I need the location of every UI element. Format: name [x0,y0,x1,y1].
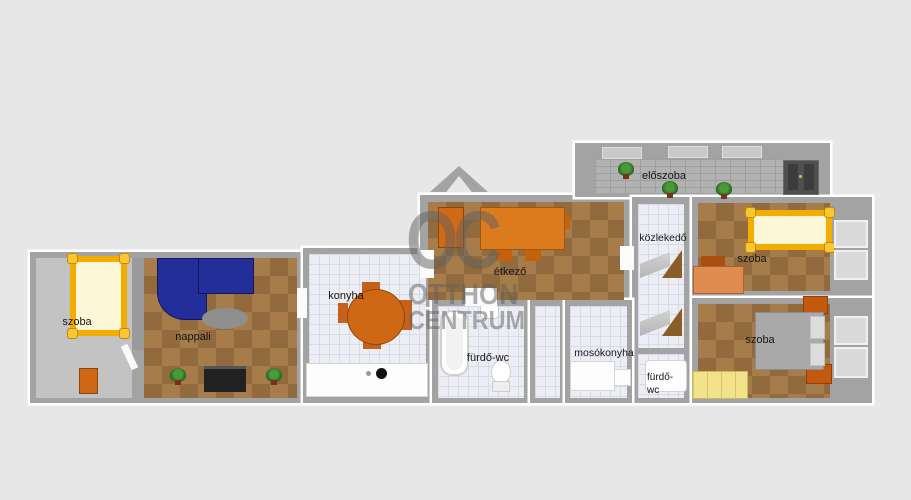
room-label-furdo-small-line2: wc [647,385,659,396]
plant-icon [618,162,634,176]
window [834,347,868,378]
room-label-kozlekedo: közlekedő [639,232,686,244]
rug [202,308,248,329]
appliance [614,369,631,386]
entry-door [783,160,819,195]
window [834,220,868,248]
dining-chair [496,249,512,261]
chevron-roof-icon [430,166,488,192]
open-door-leaf [662,308,682,336]
door-handle [799,175,802,178]
sideboard [438,207,464,248]
plant-icon [170,368,186,382]
room-label-szoba-tr: szoba [737,253,766,265]
corner-sofa-arm [198,258,254,294]
plant-icon [266,368,282,382]
window [834,316,868,345]
mattress [754,216,826,244]
room-label-szoba-left: szoba [62,316,91,328]
pillow [810,343,825,366]
toilet-tank [492,381,510,392]
pillow [810,316,825,339]
room-label-szoba-br: szoba [745,334,774,346]
washing-machine [570,361,615,391]
dresser [693,266,744,294]
ceiling-panel [722,146,762,158]
washbasin [480,304,499,319]
room-label-furdo-wc: fürdő-wc [467,352,509,364]
bathtub [440,310,469,376]
room-label-nappali: nappali [175,331,210,343]
plant-icon [716,182,732,196]
bed [748,210,832,250]
cabinet [79,368,98,394]
open-door-leaf [662,250,682,278]
room-label-furdo-small-line1: fürdő- [647,372,673,383]
room-label-etkezo: étkező [494,266,526,278]
floor-plan: szoba nappali konyha étkező fürdő-wc mos… [0,0,911,500]
door-opening-etkezo-kozlekedo [620,246,634,270]
plant-icon [662,181,678,195]
ceiling-panel [602,147,642,159]
kitchen-counter [306,363,428,397]
sink [376,368,387,379]
door-opening-etkezo-furdo [465,288,497,306]
window [834,250,868,280]
room-label-konyha: konyha [328,290,363,302]
room-narrow-floor [535,306,560,398]
wardrobe [692,371,748,399]
room-label-eloszoba: előszoba [642,170,686,182]
faucet [366,371,371,376]
door-opening-konyha-etkezo [420,250,434,278]
dining-table [480,207,565,250]
door-opening-nappali-konyha [297,288,307,318]
room-label-mosokonyha: mosókonyha [574,347,634,359]
ceiling-panel [668,146,708,158]
dining-chair [525,249,541,261]
tv [204,366,246,392]
